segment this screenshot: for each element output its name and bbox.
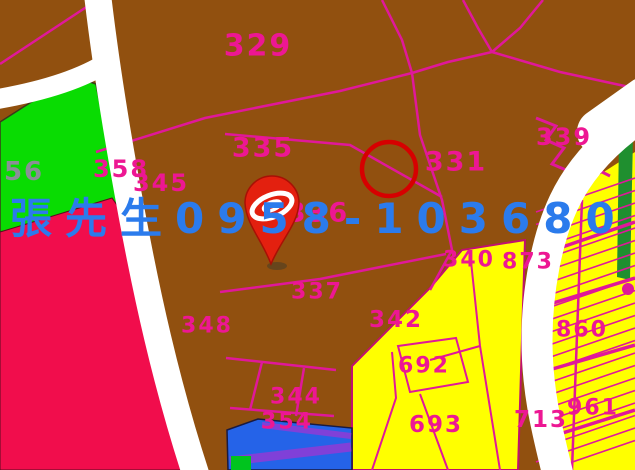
- cadastral-map[interactable]: 3293353313393563583453363373483423408738…: [0, 0, 635, 470]
- highlight-circle: [362, 142, 416, 196]
- contact-overlay-text: 張先生0958-103680: [10, 196, 628, 242]
